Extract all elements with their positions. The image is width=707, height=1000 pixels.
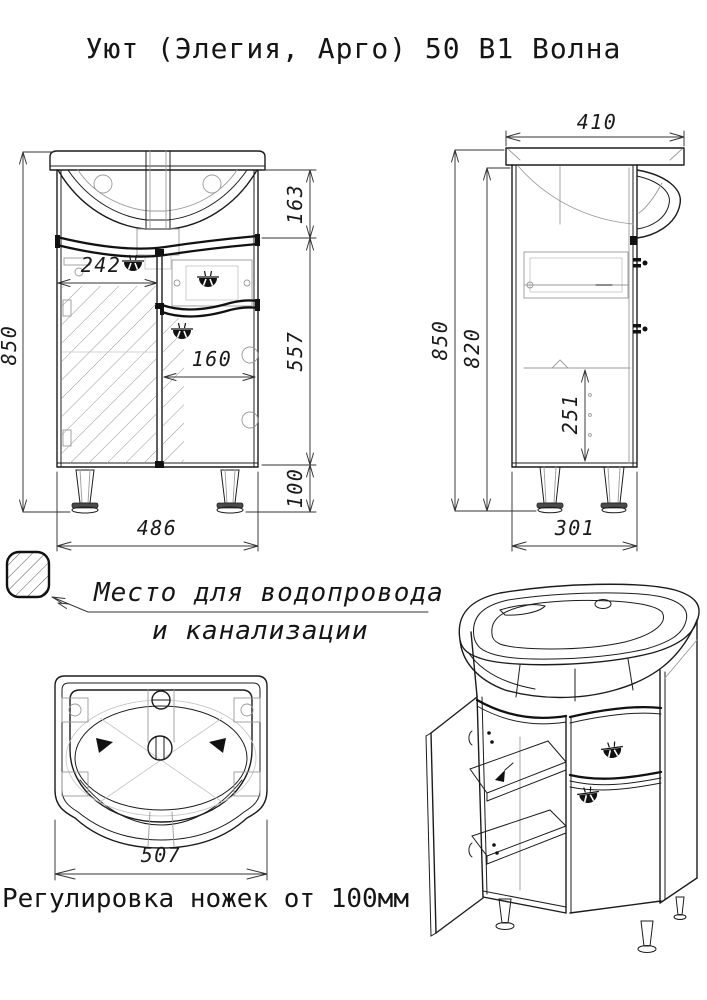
front-drawer xyxy=(160,260,260,316)
dim-side-shelf-clearance: 251 xyxy=(558,394,582,435)
front-left-door xyxy=(62,258,156,464)
legs-adjustment-note: Регулировка ножек от 100мм xyxy=(2,884,409,914)
top-drain xyxy=(148,736,172,760)
front-divider xyxy=(155,249,164,468)
drawer-handle xyxy=(197,271,219,287)
dim-front-overall-height: 850 xyxy=(0,325,21,366)
dim-front-overall-width: 486 xyxy=(137,516,178,540)
iso-drawer-handle xyxy=(600,741,624,760)
hatch-legend-icon xyxy=(7,552,49,597)
top-view: 507 xyxy=(55,676,267,880)
iso-drawer xyxy=(570,772,661,785)
top-dimensions: 507 xyxy=(55,820,267,880)
side-counter xyxy=(506,148,684,165)
iso-open-door xyxy=(426,697,499,936)
top-right-marker xyxy=(209,738,226,753)
dim-top-sink-width: 507 xyxy=(141,843,182,867)
front-legs xyxy=(72,470,243,513)
iso-sink xyxy=(459,584,699,701)
dim-side-overall-height: 850 xyxy=(428,320,452,361)
front-right-door xyxy=(163,318,258,464)
dim-front-right-door-width: 160 xyxy=(192,347,233,371)
top-sink-rim xyxy=(66,690,256,825)
dim-front-leg-height: 100 xyxy=(283,468,307,509)
dim-front-sink-section: 163 xyxy=(283,184,307,225)
iso-right-door xyxy=(570,783,661,913)
dim-front-left-door-width: 242 xyxy=(81,253,122,277)
front-view: 850 163 557 100 242 160 xyxy=(0,151,316,551)
technical-drawing: 850 163 557 100 242 160 xyxy=(0,0,707,1000)
iso-view xyxy=(426,584,699,952)
dim-side-carcass-height: 820 xyxy=(460,328,484,369)
front-dimensions: 850 163 557 100 242 160 xyxy=(0,152,316,551)
drawing-sheet: Уют (Элегия, Арго) 50 В1 Волна xyxy=(0,0,707,1000)
front-counter xyxy=(50,151,265,170)
iso-wave-rail xyxy=(477,700,661,724)
side-sink-bowl xyxy=(518,166,680,238)
hatch-note-line1: Место для водопровода xyxy=(94,578,444,608)
side-view: 410 850 820 251 xyxy=(428,110,684,551)
hatch-note-line2: и канализации xyxy=(152,616,369,646)
dim-front-body-height: 557 xyxy=(283,331,307,372)
iso-carcass xyxy=(471,620,697,913)
dim-side-depth: 410 xyxy=(577,110,618,134)
top-left-marker xyxy=(96,738,113,753)
dim-side-body-depth: 301 xyxy=(554,516,596,540)
side-legs xyxy=(537,467,627,513)
